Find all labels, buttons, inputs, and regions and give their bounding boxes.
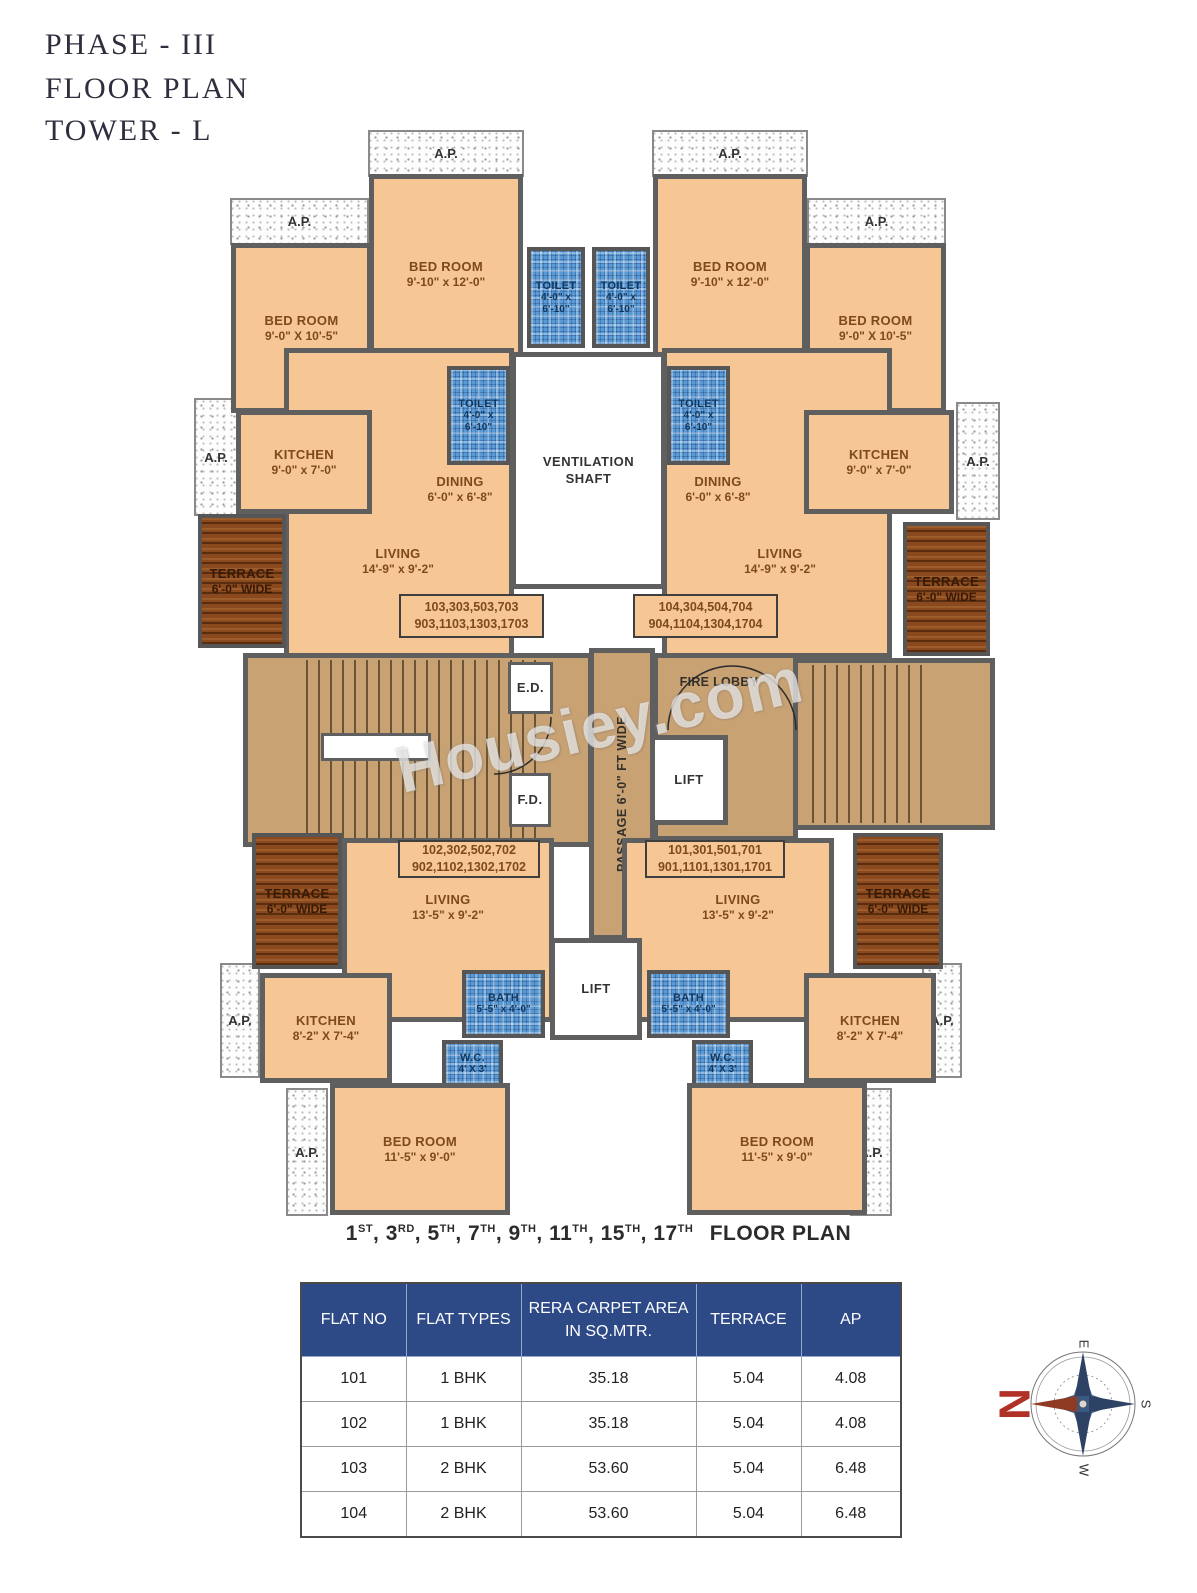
room-label: KITCHEN xyxy=(840,1013,900,1029)
fire-lobby-label: FIRE LOBBY xyxy=(680,675,759,689)
room-label: DINING xyxy=(436,474,483,490)
ap-strip-top-center-right: A.P. xyxy=(652,130,808,177)
ventilation-shaft: VENTILATION SHAFT xyxy=(511,352,666,589)
caption-item: 15TH, xyxy=(601,1222,654,1245)
room-dims: 9'-0" x 7'-0" xyxy=(846,463,911,477)
caption-item: 7TH, xyxy=(468,1222,509,1245)
room-label: TERRACE xyxy=(210,566,275,582)
unit-numbers-104: 104,304,504,704 904,1104,1304,1704 xyxy=(633,594,778,638)
cell-ap: 4.08 xyxy=(801,1357,901,1402)
compass-rose: N E S W xyxy=(995,1322,1155,1487)
toilet-mid-left: TOILET 4'-0" x 6'-10" xyxy=(447,366,510,465)
room-label: LIVING xyxy=(757,546,802,562)
unit-line: 101,301,501,701 xyxy=(668,842,762,859)
cell-flat-no: 101 xyxy=(301,1357,406,1402)
living-label-low-left: LIVING 13'-5" x 9'-2" xyxy=(368,886,528,928)
room-dims: 9'-0" X 10'-5" xyxy=(265,329,338,343)
table-row: 102 1 BHK 35.18 5.04 4.08 xyxy=(301,1402,901,1447)
living-label-mid-right: LIVING 14'-9" x 9'-2" xyxy=(700,540,860,582)
table-row: 103 2 BHK 53.60 5.04 6.48 xyxy=(301,1447,901,1492)
cell-carpet-area: 35.18 xyxy=(521,1402,696,1447)
bedroom-bottom-right: BED ROOM 11'-5" x 9'-0" xyxy=(687,1083,867,1215)
unit-line: 903,1103,1303,1703 xyxy=(414,616,528,633)
header-ap: AP xyxy=(801,1283,901,1357)
ap-strip-top-center-left: A.P. xyxy=(368,130,524,177)
room-dims: 9'-10" x 12'-0" xyxy=(691,275,769,289)
toilet-top-left: TOILET 4'-0" x 6'-10" xyxy=(527,247,585,348)
room-label: TERRACE xyxy=(914,574,979,590)
ap-label: A.P. xyxy=(434,146,458,161)
caption-item: 17TH xyxy=(653,1222,693,1245)
cell-ap: 6.48 xyxy=(801,1492,901,1538)
room-dims: 6'-0" WIDE xyxy=(868,902,929,916)
ap-label: A.P. xyxy=(966,454,990,469)
room-dims: 6'-0" x 6'-8" xyxy=(427,490,492,504)
cell-flat-type: 1 BHK xyxy=(406,1402,521,1447)
room-label: TOILET xyxy=(458,398,499,410)
ap-label: A.P. xyxy=(288,214,312,229)
title-tower: TOWER - L xyxy=(45,114,212,148)
room-dims: 4' X 3' xyxy=(708,1064,736,1076)
room-label: BED ROOM xyxy=(693,259,767,275)
room-dims: 4'-0" x 6'-10" xyxy=(596,292,646,315)
cell-terrace: 5.04 xyxy=(696,1357,801,1402)
room-label: LIVING xyxy=(715,892,760,908)
room-dims: 4'-0" x 6'-10" xyxy=(531,292,581,315)
cell-terrace: 5.04 xyxy=(696,1447,801,1492)
room-dims: 11'-5" x 9'-0" xyxy=(741,1150,812,1164)
room-dims: 6'-0" WIDE xyxy=(267,902,328,916)
unit-line: 904,1104,1304,1704 xyxy=(648,616,762,633)
room-label: KITCHEN xyxy=(274,447,334,463)
ap-strip-top-far-right: A.P. xyxy=(807,198,946,245)
cell-flat-no: 102 xyxy=(301,1402,406,1447)
ap-strip-low-left: A.P. xyxy=(220,963,260,1078)
cell-flat-no: 103 xyxy=(301,1447,406,1492)
cell-ap: 6.48 xyxy=(801,1447,901,1492)
wc-right: W.C. 4' X 3' xyxy=(692,1040,753,1087)
room-dims: 4'-0" x 6'-10" xyxy=(451,410,506,433)
ap-strip-bottom-left: A.P. xyxy=(286,1088,328,1216)
ap-label: A.P. xyxy=(295,1145,319,1160)
wc-left: W.C. 4' X 3' xyxy=(442,1040,503,1087)
room-label: KITCHEN xyxy=(849,447,909,463)
room-label: BED ROOM xyxy=(839,313,913,329)
compass-w-label: W xyxy=(1077,1464,1092,1477)
unit-line: 102,302,502,702 xyxy=(422,842,516,859)
room-label: TERRACE xyxy=(866,886,931,902)
cell-flat-type: 2 BHK xyxy=(406,1447,521,1492)
caption-item: 1ST, xyxy=(346,1222,386,1245)
table-row: 101 1 BHK 35.18 5.04 4.08 xyxy=(301,1357,901,1402)
lift-lower: LIFT xyxy=(550,938,642,1040)
room-label: BATH xyxy=(673,992,704,1004)
unit-line: 901,1101,1301,1701 xyxy=(658,859,772,876)
ap-label: A.P. xyxy=(204,450,228,465)
room-dims: 13'-5" x 9'-2" xyxy=(702,908,774,922)
cell-flat-type: 1 BHK xyxy=(406,1357,521,1402)
terrace-mid-left: TERRACE 6'-0" WIDE xyxy=(198,514,286,648)
unit-line: 103,303,503,703 xyxy=(425,599,519,616)
compass-n-label: N xyxy=(995,1388,1038,1420)
unit-line: 902,1102,1302,1702 xyxy=(412,859,526,876)
cell-carpet-area: 35.18 xyxy=(521,1357,696,1402)
cell-terrace: 5.04 xyxy=(696,1402,801,1447)
dining-label-left: DINING 6'-0" x 6'-8" xyxy=(400,468,520,510)
cell-flat-no: 104 xyxy=(301,1492,406,1538)
floor-plan-caption: 1ST, 3RD, 5TH, 7TH, 9TH, 11TH, 15TH, 17T… xyxy=(0,1222,1197,1246)
lift-label: LIFT xyxy=(674,772,703,788)
fd-label: F.D. xyxy=(517,792,542,808)
compass-s-label: S xyxy=(1139,1400,1154,1409)
unit-numbers-102: 102,302,502,702 902,1102,1302,1702 xyxy=(398,840,540,878)
toilet-top-right: TOILET 4'-0" x 6'-10" xyxy=(592,247,650,348)
room-label: DINING xyxy=(694,474,741,490)
toilet-mid-right: TOILET 4'-0" x 6'-10" xyxy=(667,366,730,465)
staircase-left-handrail xyxy=(321,733,431,761)
room-label: W.C. xyxy=(710,1052,735,1064)
unit-numbers-103: 103,303,503,703 903,1103,1303,1703 xyxy=(399,594,544,638)
room-label: LIVING xyxy=(425,892,470,908)
room-dims: 4'-0" x 6'-10" xyxy=(671,410,726,433)
unit-numbers-101: 101,301,501,701 901,1101,1301,1701 xyxy=(645,840,785,878)
table-header-row: FLAT NO FLAT TYPES RERA CARPET AREA IN S… xyxy=(301,1283,901,1357)
room-dims: 9'-0" X 10'-5" xyxy=(839,329,912,343)
ap-strip-mid-left: A.P. xyxy=(194,398,238,516)
room-label: BED ROOM xyxy=(265,313,339,329)
fire-duct: F.D. xyxy=(509,773,551,827)
room-dims: 8'-2" X 7'-4" xyxy=(837,1029,903,1043)
room-label: TOILET xyxy=(601,280,642,292)
bath-right: BATH 5'-5" x 4'-0" xyxy=(647,970,730,1038)
title-phase: PHASE - III xyxy=(45,28,217,62)
bedroom-top-center-left: BED ROOM 9'-10" x 12'-0" xyxy=(369,174,523,374)
room-dims: 9'-10" x 12'-0" xyxy=(407,275,485,289)
caption-item: 3RD, xyxy=(386,1222,428,1245)
cell-terrace: 5.04 xyxy=(696,1492,801,1538)
room-dims: 4' X 3' xyxy=(458,1064,486,1076)
compass-e-label: E xyxy=(1077,1340,1092,1349)
ap-label: A.P. xyxy=(865,214,889,229)
caption-item: 5TH, xyxy=(427,1222,468,1245)
staircase-right-treads xyxy=(812,665,930,823)
dining-label-right: DINING 6'-0" x 6'-8" xyxy=(658,468,778,510)
room-label: BED ROOM xyxy=(409,259,483,275)
table-row: 104 2 BHK 53.60 5.04 6.48 xyxy=(301,1492,901,1538)
cell-carpet-area: 53.60 xyxy=(521,1447,696,1492)
room-label: BED ROOM xyxy=(740,1134,814,1150)
header-flat-types: FLAT TYPES xyxy=(406,1283,521,1357)
room-label: W.C. xyxy=(460,1052,485,1064)
room-dims: 9'-0" x 7'-0" xyxy=(271,463,336,477)
ventilation-label-line1: VENTILATION xyxy=(543,454,634,470)
terrace-low-right: TERRACE 6'-0" WIDE xyxy=(853,833,943,969)
kitchen-low-right: KITCHEN 8'-2" X 7'-4" xyxy=(804,973,936,1083)
ed-label: E.D. xyxy=(517,680,544,696)
room-dims: 6'-0" WIDE xyxy=(916,590,977,604)
kitchen-low-left: KITCHEN 8'-2" X 7'-4" xyxy=(260,973,392,1083)
caption-item: 9TH, xyxy=(509,1222,550,1245)
room-dims: 5'-5" x 4'-0" xyxy=(661,1004,715,1016)
room-label: BED ROOM xyxy=(383,1134,457,1150)
terrace-mid-right: TERRACE 6'-0" WIDE xyxy=(903,522,990,656)
unit-line: 104,304,504,704 xyxy=(659,599,753,616)
header-terrace: TERRACE xyxy=(696,1283,801,1357)
lift-upper: LIFT xyxy=(650,735,728,825)
room-dims: 6'-0" WIDE xyxy=(212,582,273,596)
room-dims: 6'-0" x 6'-8" xyxy=(685,490,750,504)
bath-left: BATH 5'-5" x 4'-0" xyxy=(462,970,545,1038)
title-floor-plan: FLOOR PLAN xyxy=(45,72,249,106)
floor-plan-page: { "title": {"line1": "PHASE - III", "lin… xyxy=(0,0,1197,1593)
kitchen-mid-left: KITCHEN 9'-0" x 7'-0" xyxy=(236,410,372,514)
room-dims: 13'-5" x 9'-2" xyxy=(412,908,484,922)
kitchen-mid-right: KITCHEN 9'-0" x 7'-0" xyxy=(804,410,954,514)
terrace-low-left: TERRACE 6'-0" WIDE xyxy=(252,833,342,969)
ap-label: A.P. xyxy=(228,1013,252,1028)
room-label: LIVING xyxy=(375,546,420,562)
cell-carpet-area: 53.60 xyxy=(521,1492,696,1538)
ventilation-label-line2: SHAFT xyxy=(566,471,612,487)
room-dims: 11'-5" x 9'-0" xyxy=(384,1150,455,1164)
ap-strip-top-far-left: A.P. xyxy=(230,198,369,245)
living-label-mid-left: LIVING 14'-9" x 9'-2" xyxy=(318,540,478,582)
room-dims: 14'-9" x 9'-2" xyxy=(362,562,434,576)
room-label: KITCHEN xyxy=(296,1013,356,1029)
header-flat-no: FLAT NO xyxy=(301,1283,406,1357)
caption-item: 11TH, xyxy=(549,1222,601,1245)
caption-suffix: FLOOR PLAN xyxy=(710,1222,852,1245)
room-dims: 14'-9" x 9'-2" xyxy=(744,562,816,576)
room-dims: 5'-5" x 4'-0" xyxy=(476,1004,530,1016)
room-label: TOILET xyxy=(536,280,577,292)
room-label: TERRACE xyxy=(265,886,330,902)
bedroom-bottom-left: BED ROOM 11'-5" x 9'-0" xyxy=(330,1083,510,1215)
room-label: TOILET xyxy=(678,398,719,410)
living-label-low-right: LIVING 13'-5" x 9'-2" xyxy=(658,886,818,928)
ap-label: A.P. xyxy=(718,146,742,161)
cell-flat-type: 2 BHK xyxy=(406,1492,521,1538)
lift-label: LIFT xyxy=(581,981,610,997)
flat-area-table: FLAT NO FLAT TYPES RERA CARPET AREA IN S… xyxy=(300,1282,902,1538)
fire-lobby-label-box: FIRE LOBBY xyxy=(664,672,774,692)
room-dims: 8'-2" X 7'-4" xyxy=(293,1029,359,1043)
electrical-duct: E.D. xyxy=(508,662,553,714)
ap-strip-mid-right: A.P. xyxy=(956,402,1000,520)
header-rera-carpet-area: RERA CARPET AREA IN SQ.MTR. xyxy=(521,1283,696,1357)
bedroom-top-center-right: BED ROOM 9'-10" x 12'-0" xyxy=(653,174,807,374)
cell-ap: 4.08 xyxy=(801,1402,901,1447)
room-label: BATH xyxy=(488,992,519,1004)
